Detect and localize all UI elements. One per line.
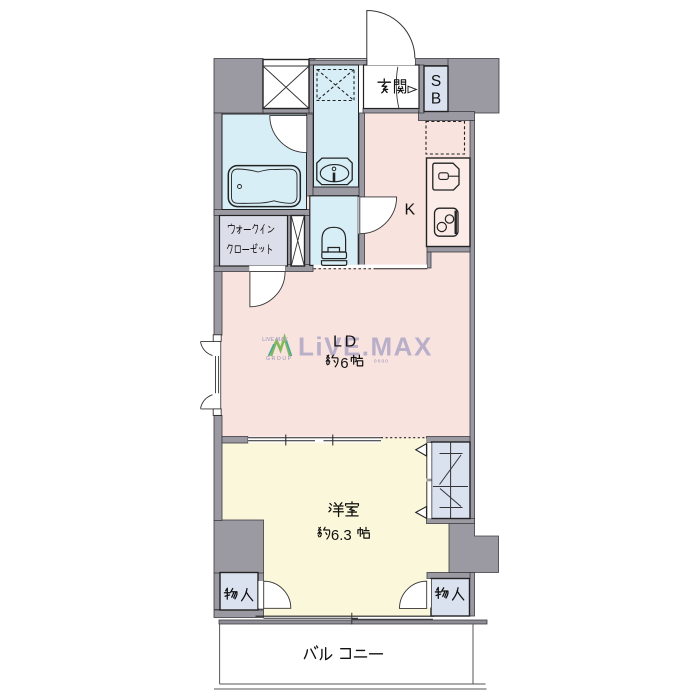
svg-text:LiVE MAX: LiVE MAX	[262, 337, 288, 343]
svg-text:LD: LD	[333, 333, 359, 350]
svg-text:6: 6	[340, 355, 348, 372]
svg-text:6.3: 6.3	[331, 527, 352, 544]
svg-text:S: S	[431, 73, 441, 90]
svg-text:K: K	[405, 202, 416, 219]
svg-text:GROUP: GROUP	[266, 356, 293, 362]
svg-text:0 0 0 0: 0 0 0 0	[374, 359, 388, 364]
svg-text:B: B	[431, 91, 441, 108]
svg-text:LiVE.MAX: LiVE.MAX	[298, 332, 433, 362]
